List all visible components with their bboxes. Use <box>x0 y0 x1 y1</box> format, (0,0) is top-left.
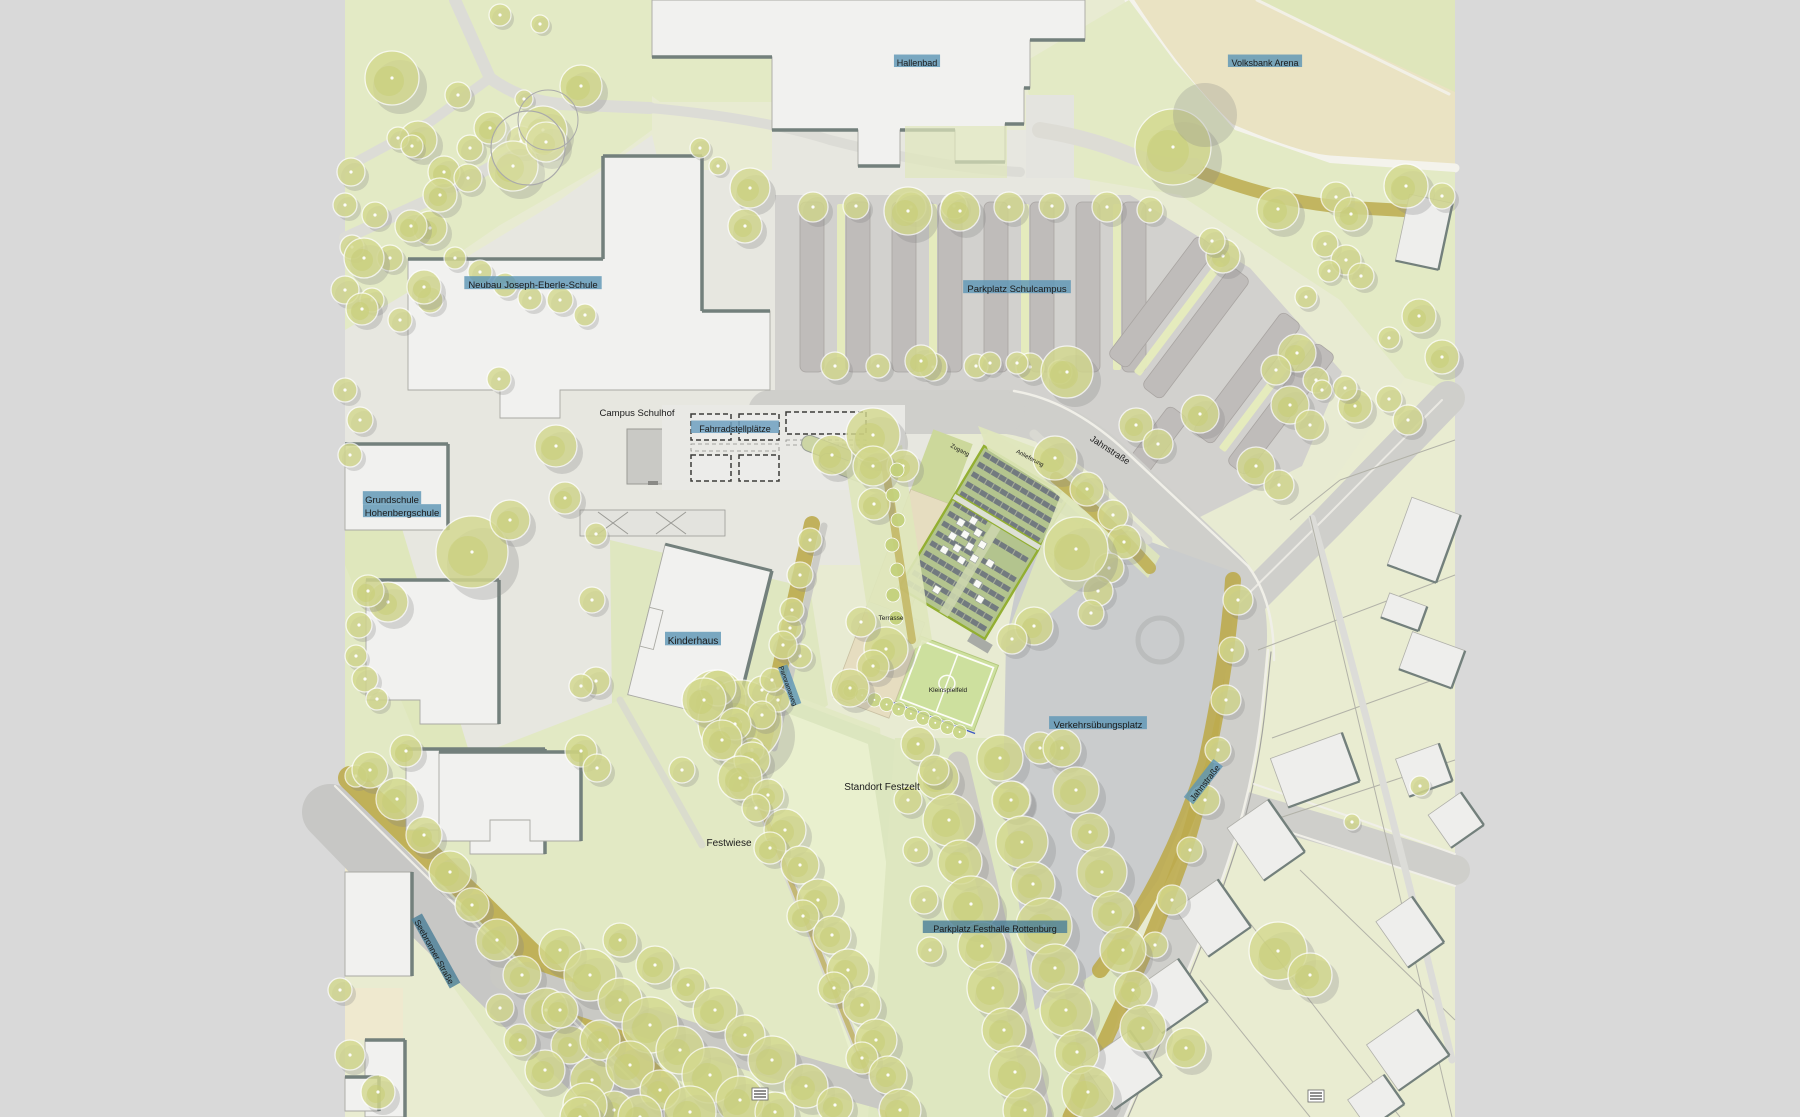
svg-text:Hallenbad: Hallenbad <box>897 58 938 68</box>
svg-text:Parkplatz Schulcampus: Parkplatz Schulcampus <box>967 284 1067 295</box>
svg-text:Kleinspielfeld: Kleinspielfeld <box>929 687 968 694</box>
svg-text:Kinderhaus: Kinderhaus <box>668 636 719 647</box>
svg-text:Fahrradstellplätze: Fahrradstellplätze <box>699 424 771 434</box>
svg-text:Verkehrsübungsplatz: Verkehrsübungsplatz <box>1054 720 1143 731</box>
svg-text:Campus Schulhof: Campus Schulhof <box>600 408 675 419</box>
svg-text:Hohenbergschule: Hohenbergschule <box>365 508 439 519</box>
svg-text:Terrasse: Terrasse <box>879 615 904 622</box>
svg-text:Standort Festzelt: Standort Festzelt <box>844 782 920 793</box>
svg-text:Volksbank Arena: Volksbank Arena <box>1231 58 1298 68</box>
svg-text:Neubau Joseph-Eberle-Schule: Neubau Joseph-Eberle-Schule <box>468 280 597 291</box>
svg-text:Festwiese: Festwiese <box>706 838 751 849</box>
svg-text:Parkplatz Festhalle Rottenburg: Parkplatz Festhalle Rottenburg <box>933 924 1057 934</box>
